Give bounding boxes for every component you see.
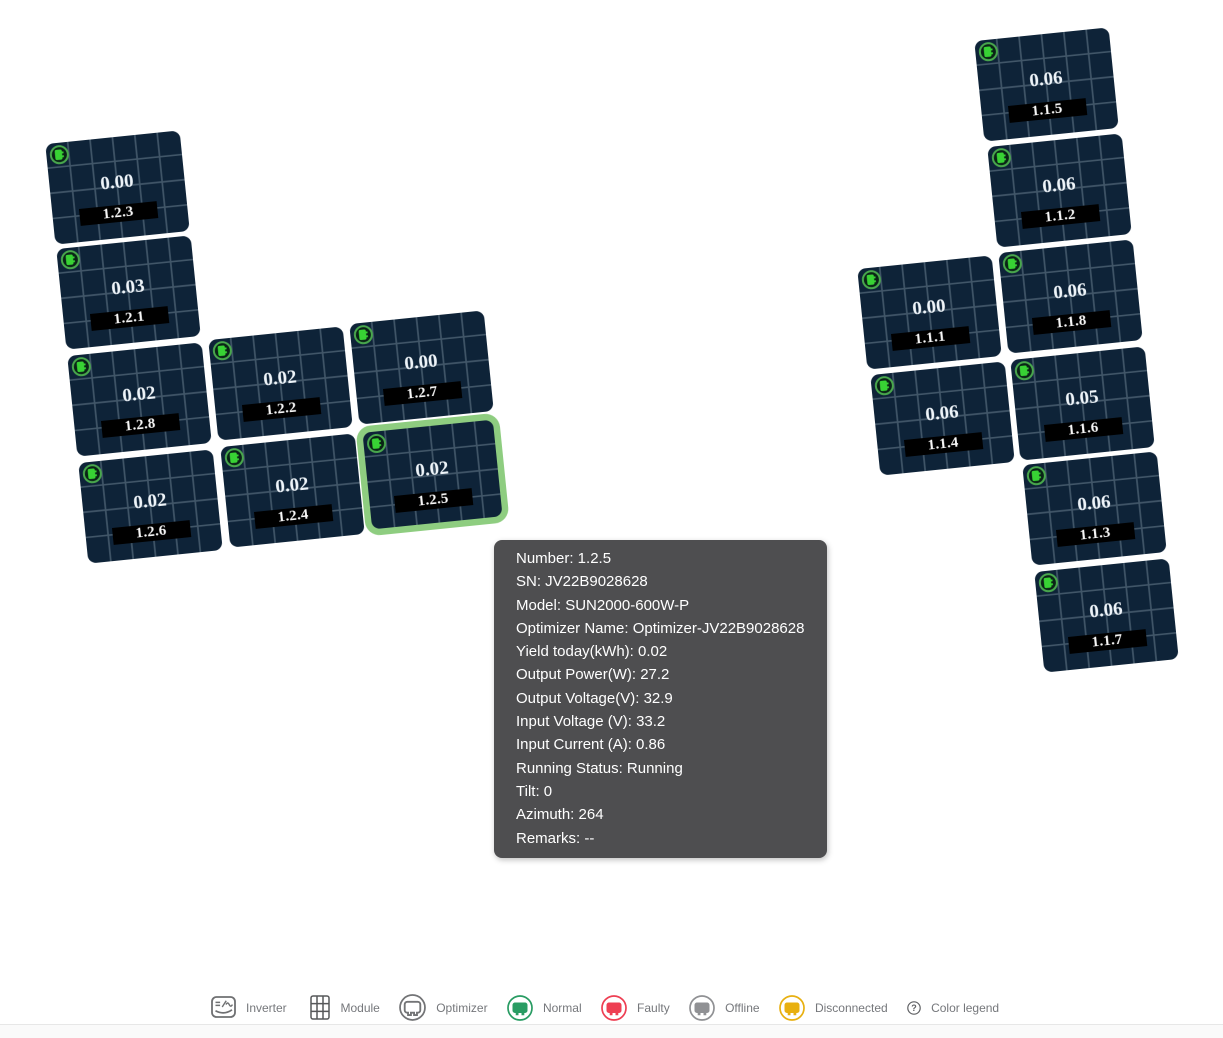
- svg-text:?: ?: [911, 1003, 917, 1013]
